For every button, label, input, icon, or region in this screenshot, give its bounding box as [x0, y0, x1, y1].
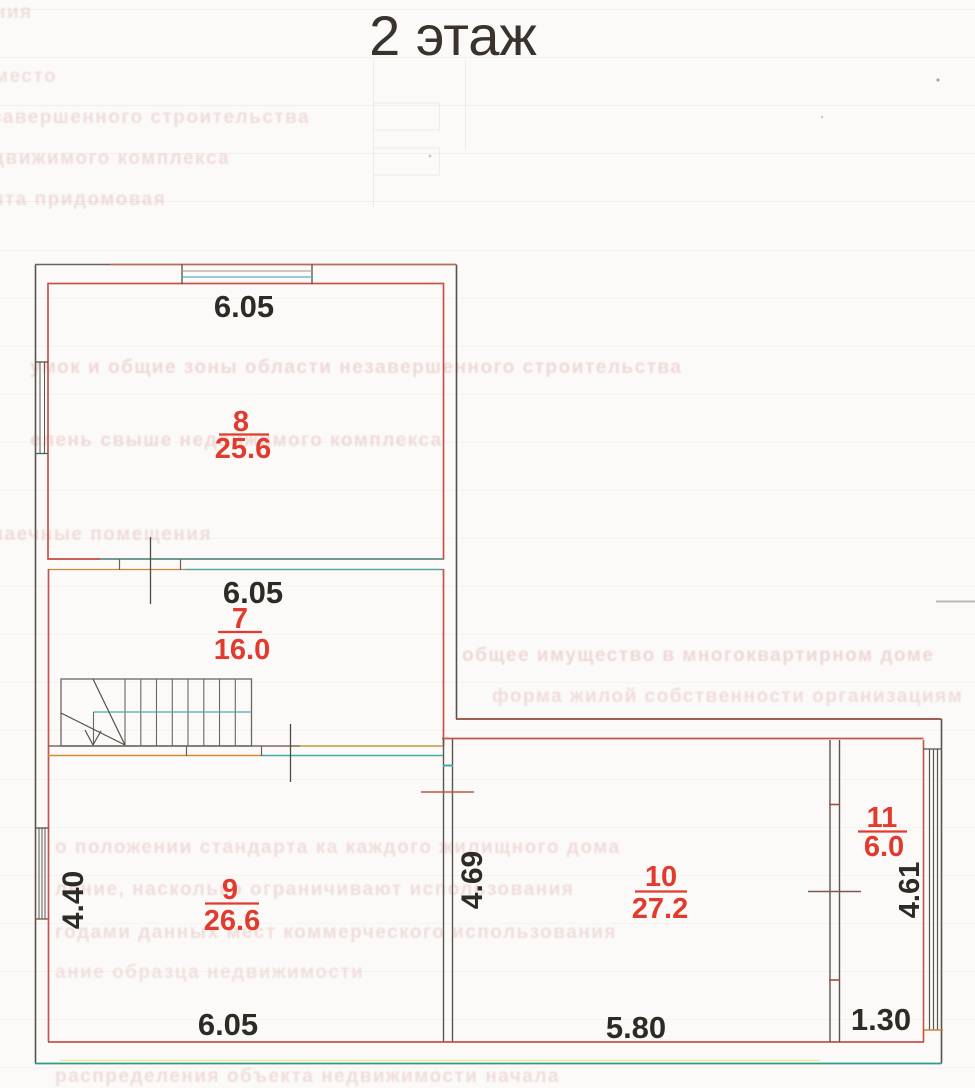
svg-text:6.05: 6.05	[198, 1007, 258, 1042]
svg-text:4.61: 4.61	[894, 862, 926, 918]
svg-text:11: 11	[867, 802, 898, 834]
svg-text:16.0: 16.0	[214, 634, 270, 666]
svg-text:6.05: 6.05	[214, 289, 274, 324]
svg-text:5.80: 5.80	[606, 1010, 666, 1045]
svg-text:1.30: 1.30	[851, 1002, 911, 1037]
svg-text:10: 10	[645, 861, 677, 893]
svg-text:9: 9	[222, 874, 238, 906]
svg-text:4.40: 4.40	[57, 871, 90, 929]
svg-text:4.69: 4.69	[456, 851, 489, 909]
svg-text:25.6: 25.6	[215, 433, 271, 465]
svg-text:26.6: 26.6	[204, 905, 260, 937]
svg-text:27.2: 27.2	[632, 893, 688, 925]
svg-text:6.0: 6.0	[864, 831, 904, 863]
svg-text:7: 7	[232, 603, 248, 635]
